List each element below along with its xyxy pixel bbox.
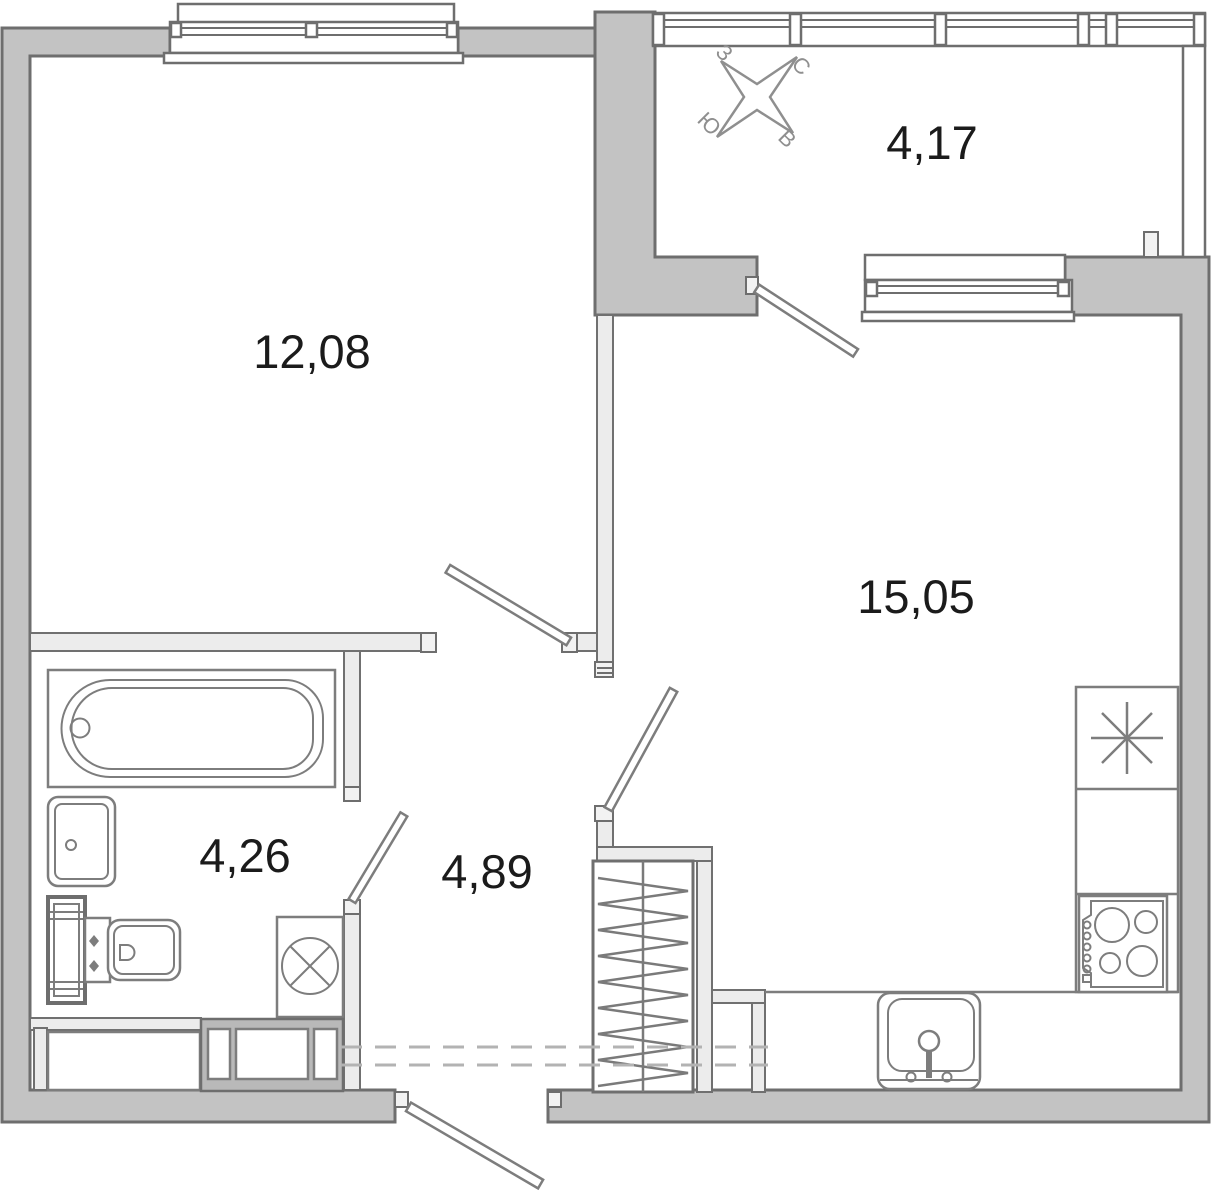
- compass-star: [717, 57, 797, 137]
- floor-plan-canvas: З С Ю В 12,08 4,17 15,05 4,26 4,89: [0, 0, 1211, 1191]
- washing-machine: [277, 917, 343, 1017]
- balcony-glazing-right: [1183, 46, 1205, 257]
- bathroom-door: [344, 787, 407, 914]
- wall-bedroom-balcony-column: [595, 12, 757, 315]
- faucet: [919, 1031, 939, 1051]
- towel-radiator: [48, 897, 85, 1003]
- room-label-bedroom: 12,08: [253, 325, 371, 378]
- bedroom-door: [421, 565, 577, 652]
- room-label-balcony: 4,17: [886, 116, 977, 169]
- partition-wardrobe-top: [597, 847, 712, 861]
- room-label-hallway: 4,89: [441, 845, 532, 898]
- entrance-door-leaf: [406, 1103, 543, 1189]
- hall-living-door: [595, 662, 677, 821]
- living-window-sill: [862, 312, 1074, 321]
- bathroom-door-leaf: [349, 812, 408, 903]
- compass-rose: З С Ю В: [693, 39, 816, 153]
- toilet: [85, 918, 180, 982]
- wardrobe: [593, 861, 693, 1092]
- living-room-window: [862, 255, 1074, 321]
- balcony-corner-post: [1144, 232, 1158, 257]
- partition-niche-top: [712, 990, 765, 1003]
- bathroom-sink: [48, 797, 115, 886]
- bedroom-window: [164, 4, 463, 63]
- partition-wardrobe-right: [697, 861, 712, 1092]
- floor-plan: З С Ю В 12,08 4,17 15,05 4,26 4,89: [0, 0, 1211, 1191]
- bedroom-door-leaf: [446, 565, 571, 645]
- balcony-door-leaf: [754, 285, 858, 357]
- room-label-living-kitchen: 15,05: [857, 570, 975, 623]
- entrance-door: [395, 1092, 561, 1188]
- partition-bath-cabinet-ledge: [30, 1018, 201, 1030]
- stove: [1079, 896, 1167, 992]
- bedroom-window-sill: [164, 53, 463, 63]
- partition-bath-cabinet-side: [34, 1028, 47, 1090]
- bathtub: [48, 670, 335, 787]
- compass-east: В: [773, 125, 801, 153]
- partition-bathroom-right-upper: [344, 651, 360, 788]
- wall-top-middle: [458, 28, 597, 56]
- kitchen-sink: [878, 993, 980, 1089]
- hall-living-door-leaf: [604, 688, 677, 811]
- room-label-bathroom: 4,26: [199, 829, 290, 882]
- partition-bathroom-top: [30, 633, 435, 651]
- partition-bedroom-living: [597, 315, 613, 662]
- balcony-door: [746, 277, 858, 357]
- compass-north: С: [787, 51, 816, 80]
